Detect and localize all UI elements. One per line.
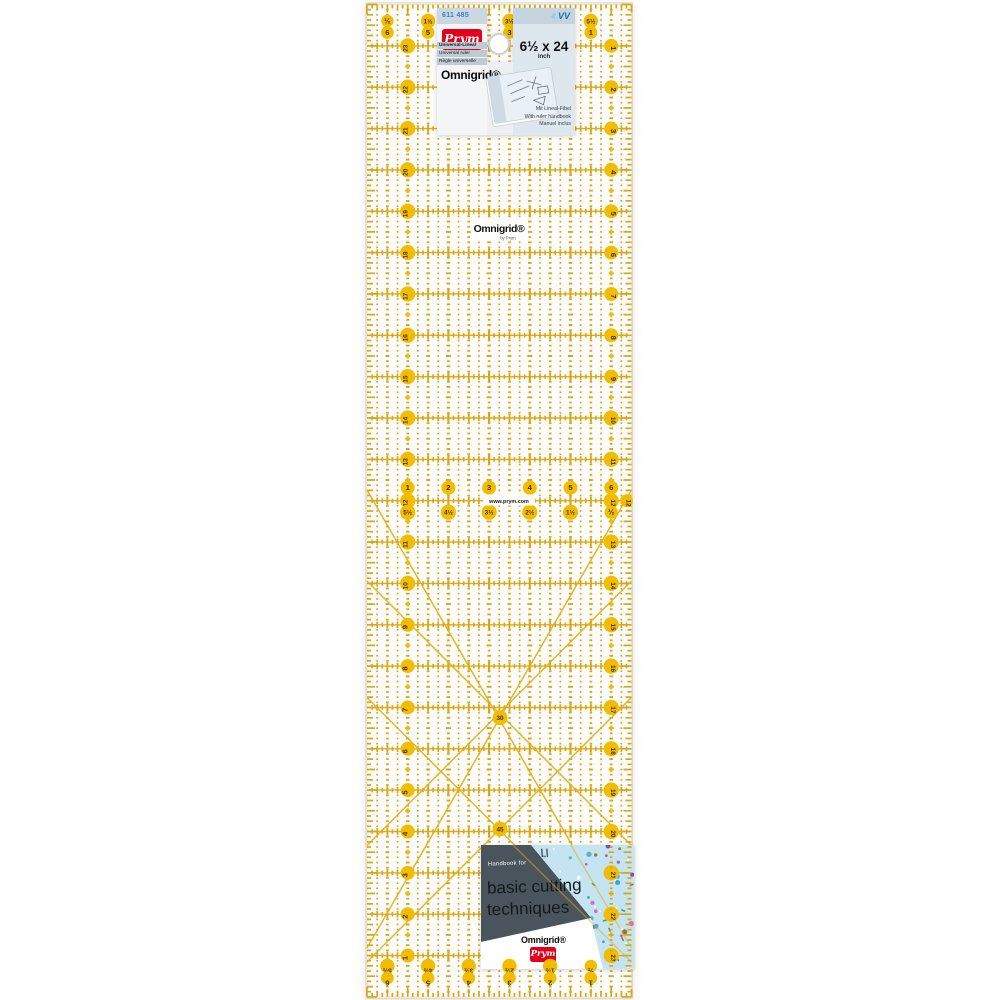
handbook-title-line2: techniques: [487, 898, 570, 921]
size-label: 6½ x 24: [515, 39, 573, 54]
vv-logo: VV: [551, 11, 570, 21]
ruler-hanging-hole: [488, 33, 510, 55]
omnigrid-logo-bottom: Omnigrid®: [521, 935, 566, 945]
unit-label: inch: [515, 54, 573, 60]
vv-logo-icon: [551, 13, 557, 19]
handbook-note-de: Mit Lineal-Fibel: [501, 106, 571, 114]
handbook-note-en: With ruler handbook: [501, 114, 571, 122]
product-photo: 3045231222213204195186177168159141013111…: [0, 0, 1000, 1000]
product-name-de: Universal-Lineal: [437, 42, 487, 49]
article-number: 611 485: [442, 12, 469, 19]
handbook-title-line1: basic cutting: [487, 875, 582, 898]
top-label-card: 611 485 VV Prym Universal-Lineal Univers…: [437, 8, 575, 135]
handbook-note: Mit Lineal-Fibel With ruler handbook Man…: [501, 106, 571, 129]
product-name-en: Universal ruler: [437, 50, 487, 57]
product-name-fr: Règle universelle: [437, 58, 487, 65]
handbook-note-fr: Manuel inclus: [501, 121, 571, 129]
bottom-label-card: Handbook for basic cutting techniques Om…: [481, 845, 634, 969]
prym-logo-bottom: Prym: [530, 947, 556, 962]
